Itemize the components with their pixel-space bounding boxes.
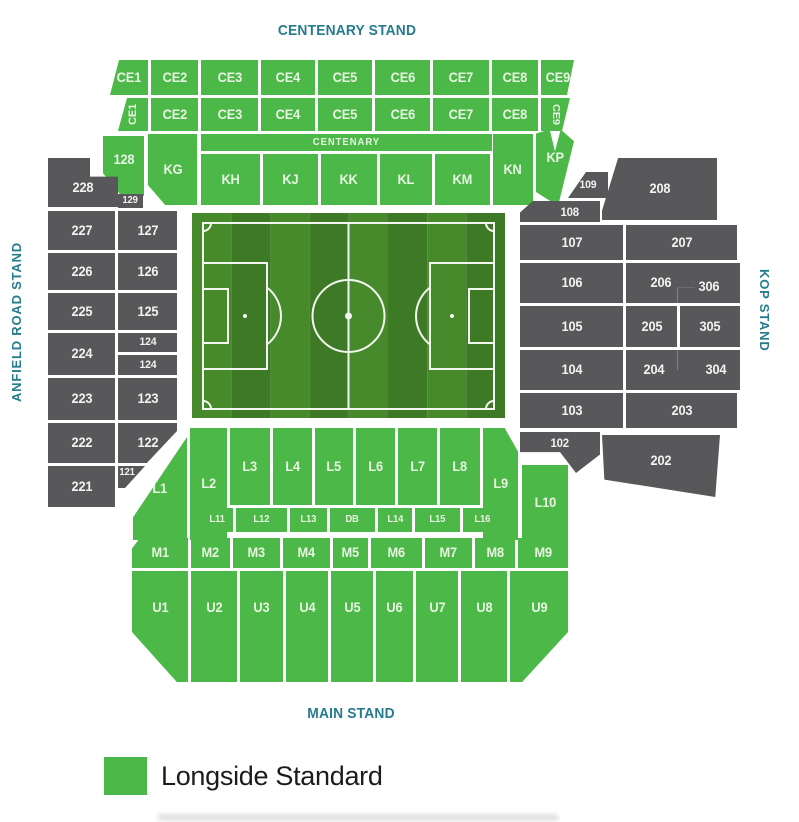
section-label: L2 xyxy=(201,477,216,491)
section-127[interactable]: 127 xyxy=(118,211,177,250)
section-label: 107 xyxy=(561,236,582,250)
section-126[interactable]: 126 xyxy=(118,253,177,290)
section-label: 105 xyxy=(561,320,582,334)
section-label: 122 xyxy=(137,436,158,450)
section-label: L16 xyxy=(475,515,491,525)
section-label: U4 xyxy=(299,601,315,615)
section-ce9[interactable]: CE9 xyxy=(541,98,570,131)
section-123[interactable]: 123 xyxy=(118,378,177,420)
section-u1[interactable]: U1 xyxy=(132,571,188,682)
section-m8[interactable]: M8 xyxy=(475,538,515,568)
section-label: M4 xyxy=(298,546,315,560)
section-203[interactable]: 203 xyxy=(626,393,737,428)
main-stand-title: MAIN STAND xyxy=(307,705,394,722)
section-label: L3 xyxy=(243,460,258,474)
section-label: 207 xyxy=(671,236,692,250)
section-l8[interactable]: L8 xyxy=(440,428,480,505)
section-label: 102 xyxy=(551,437,569,449)
section-label: 206 xyxy=(650,276,671,290)
section-label: L8 xyxy=(453,460,468,474)
section-label: 228 xyxy=(73,181,94,195)
section-label: CE2 xyxy=(162,108,186,122)
section-kl[interactable]: KL xyxy=(380,154,432,205)
section-m4[interactable]: M4 xyxy=(283,538,330,568)
section-label: 121 xyxy=(120,468,135,478)
section-ce6[interactable]: CE6 xyxy=(375,98,430,131)
section-label: M8 xyxy=(486,546,503,560)
section-u4[interactable]: U4 xyxy=(286,571,328,682)
section-224[interactable]: 224 xyxy=(48,333,115,375)
section-label: 103 xyxy=(561,404,582,418)
section-label: CE4 xyxy=(276,71,300,85)
kop-stand-title: KOP STAND xyxy=(757,269,772,352)
legend-swatch xyxy=(104,757,147,795)
section-label: 227 xyxy=(71,224,92,238)
section-m1[interactable]: M1 xyxy=(132,538,188,568)
section-ce5[interactable]: CE5 xyxy=(318,60,372,95)
section-l13[interactable]: L13 xyxy=(290,508,327,532)
section-l11[interactable]: L11 xyxy=(202,508,233,532)
section-label: KL xyxy=(398,173,415,187)
section-label: KG xyxy=(163,163,182,177)
section-l6[interactable]: L6 xyxy=(356,428,395,505)
section-103[interactable]: 103 xyxy=(520,393,623,428)
football-pitch xyxy=(192,213,505,418)
section-label: 225 xyxy=(71,305,92,319)
section-m9[interactable]: M9 xyxy=(518,538,568,568)
section-ce8[interactable]: CE8 xyxy=(492,60,538,95)
section-kn[interactable]: KN xyxy=(493,134,533,205)
anfield-road-stand-title: ANFIELD ROAD STAND xyxy=(9,242,24,402)
section-label: L15 xyxy=(430,515,446,525)
section-105[interactable]: 105 xyxy=(520,306,623,347)
section-label: 128 xyxy=(113,153,134,167)
section-label: 123 xyxy=(137,392,158,406)
section-l5[interactable]: L5 xyxy=(315,428,353,505)
section-kg[interactable]: KG xyxy=(148,134,197,205)
section-label: M5 xyxy=(342,546,359,560)
section-l4[interactable]: L4 xyxy=(273,428,312,505)
section-226[interactable]: 226 xyxy=(48,253,115,290)
section-u8[interactable]: U8 xyxy=(461,571,507,682)
section-label: DB xyxy=(346,515,359,525)
section-label: M7 xyxy=(440,546,457,560)
section-109[interactable]: 109 xyxy=(568,172,608,198)
section-222[interactable]: 222 xyxy=(48,423,115,463)
section-l10[interactable]: L10 xyxy=(522,465,568,540)
section-kj[interactable]: KJ xyxy=(263,154,318,205)
section-125[interactable]: 125 xyxy=(118,293,177,330)
section-106[interactable]: 106 xyxy=(520,263,623,303)
stadium-seat-map: CENTENARY STAND ANFIELD ROAD STAND KOP S… xyxy=(0,0,799,822)
section-124[interactable]: 124 xyxy=(118,333,177,352)
section-label: CE5 xyxy=(333,108,357,122)
section-label: CE3 xyxy=(217,71,241,85)
section-m3[interactable]: M3 xyxy=(233,538,280,568)
section-label: M2 xyxy=(202,546,219,560)
section-label: 106 xyxy=(561,276,582,290)
section-label: M3 xyxy=(248,546,265,560)
section-205[interactable]: 205 xyxy=(626,306,677,347)
section-l14[interactable]: L14 xyxy=(378,508,412,532)
section-221[interactable]: 221 xyxy=(48,466,115,507)
section-ce7[interactable]: CE7 xyxy=(433,60,489,95)
section-label: CE4 xyxy=(276,108,300,122)
section-label: L14 xyxy=(387,515,403,525)
section-l3[interactable]: L3 xyxy=(230,428,270,505)
section-label: U5 xyxy=(344,601,360,615)
section-kh[interactable]: KH xyxy=(201,154,260,205)
centenary-stand-title: CENTENARY STAND xyxy=(278,22,416,39)
section-label: 127 xyxy=(137,224,158,238)
section-u6[interactable]: U6 xyxy=(376,571,413,682)
section-u2[interactable]: U2 xyxy=(191,571,237,682)
section-label: L12 xyxy=(254,515,270,525)
section-label: CE9 xyxy=(550,104,560,125)
section-u7[interactable]: U7 xyxy=(416,571,458,682)
section-ce2[interactable]: CE2 xyxy=(151,60,198,95)
cropped-legend-row xyxy=(158,814,558,821)
section-label: CE9 xyxy=(545,71,569,85)
section-label: CE6 xyxy=(390,71,414,85)
section-label: 221 xyxy=(71,480,92,494)
section-223[interactable]: 223 xyxy=(48,378,115,420)
section-label: 306 xyxy=(699,280,720,294)
section-label: 109 xyxy=(580,180,597,191)
section-label: KK xyxy=(340,173,358,187)
section-ce3[interactable]: CE3 xyxy=(201,98,258,131)
section-label: 124 xyxy=(139,337,156,348)
section-l15[interactable]: L15 xyxy=(415,508,460,532)
section-108[interactable]: 108 xyxy=(520,201,600,222)
section-104[interactable]: 104 xyxy=(520,350,623,390)
section-label: 222 xyxy=(71,436,92,450)
section-202[interactable]: 202 xyxy=(602,435,720,497)
section-u9[interactable]: U9 xyxy=(510,571,568,682)
section-ce2[interactable]: CE2 xyxy=(151,98,198,131)
section-km[interactable]: KM xyxy=(435,154,490,205)
section-label: M1 xyxy=(151,546,168,560)
section-ce4[interactable]: CE4 xyxy=(261,60,315,95)
section-label: L5 xyxy=(327,460,342,474)
section-label: CE8 xyxy=(503,71,527,85)
section-ce1[interactable]: CE1 xyxy=(110,60,148,95)
section-u5[interactable]: U5 xyxy=(331,571,373,682)
section-label: KJ xyxy=(282,173,298,187)
section-label: KH xyxy=(221,173,239,187)
section-label: L6 xyxy=(368,460,383,474)
section-label: U3 xyxy=(253,601,269,615)
section-ce7[interactable]: CE7 xyxy=(433,98,489,131)
section-label: KM xyxy=(453,173,473,187)
section-label: 226 xyxy=(71,265,92,279)
section-l7[interactable]: L7 xyxy=(398,428,437,505)
section-label: L9 xyxy=(493,477,508,491)
section-label: CE7 xyxy=(449,108,473,122)
section-ce8[interactable]: CE8 xyxy=(492,98,538,131)
section-label: 223 xyxy=(71,392,92,406)
section-kp[interactable]: KP xyxy=(536,128,574,206)
section-label: 108 xyxy=(561,206,579,218)
section-121[interactable]: 121 xyxy=(118,466,145,488)
section-m7[interactable]: M7 xyxy=(425,538,472,568)
section-label: CE3 xyxy=(217,108,241,122)
section-m6[interactable]: M6 xyxy=(371,538,422,568)
section-label: 124 xyxy=(139,360,156,371)
section-label: L4 xyxy=(285,460,300,474)
section-225[interactable]: 225 xyxy=(48,293,115,330)
section-kk[interactable]: KK xyxy=(321,154,377,205)
section-m5[interactable]: M5 xyxy=(333,538,368,568)
section-label: U2 xyxy=(206,601,222,615)
section-label: U9 xyxy=(531,601,547,615)
section-208[interactable]: 208 xyxy=(602,158,717,220)
section-label: 202 xyxy=(651,454,672,468)
section-122[interactable]: 122 xyxy=(118,423,177,463)
legend: Longside Standard xyxy=(104,757,383,795)
section-label: L1 xyxy=(153,482,168,496)
section-ce5[interactable]: CE5 xyxy=(318,98,372,131)
section-label: 208 xyxy=(649,182,670,196)
section-label: CE1 xyxy=(128,104,139,125)
section-l16[interactable]: L16 xyxy=(463,508,502,532)
section-label: 126 xyxy=(137,265,158,279)
section-ce3[interactable]: CE3 xyxy=(201,60,258,95)
section-label: U1 xyxy=(152,601,168,615)
section-centenary[interactable]: CENTENARY xyxy=(201,134,492,151)
section-label: CE1 xyxy=(117,71,141,85)
section-227[interactable]: 227 xyxy=(48,211,115,250)
section-label: CE8 xyxy=(503,108,527,122)
section-107[interactable]: 107 xyxy=(520,225,623,260)
section-ce9[interactable]: CE9 xyxy=(541,60,574,95)
section-label: 205 xyxy=(641,320,662,334)
section-label: U7 xyxy=(429,601,445,615)
legend-label: Longside Standard xyxy=(161,761,383,792)
section-label: L7 xyxy=(410,460,425,474)
section-label: CE2 xyxy=(162,71,186,85)
section-db[interactable]: DB xyxy=(330,508,375,532)
section-ce4[interactable]: CE4 xyxy=(261,98,315,131)
section-ce6[interactable]: CE6 xyxy=(375,60,430,95)
section-label: M6 xyxy=(388,546,405,560)
section-label: 125 xyxy=(137,305,158,319)
section-label: M9 xyxy=(534,546,551,560)
section-124[interactable]: 124 xyxy=(118,355,177,375)
section-label: KP xyxy=(546,151,563,165)
section-label: 305 xyxy=(700,320,721,334)
section-u3[interactable]: U3 xyxy=(240,571,283,682)
section-label: L13 xyxy=(301,515,317,525)
section-label: U8 xyxy=(476,601,492,615)
section-m2[interactable]: M2 xyxy=(191,538,230,568)
section-129[interactable]: 129 xyxy=(118,194,143,208)
section-label: 204 xyxy=(643,363,664,377)
section-l12[interactable]: L12 xyxy=(236,508,287,532)
section-label: L11 xyxy=(210,515,225,525)
section-label: U6 xyxy=(386,601,402,615)
section-label: CE7 xyxy=(449,71,473,85)
section-label: 224 xyxy=(71,347,92,361)
pitch-graphic xyxy=(192,213,505,418)
section-label: 203 xyxy=(671,404,692,418)
section-ce1[interactable]: CE1 xyxy=(118,98,148,131)
section-label: L10 xyxy=(534,496,556,510)
section-207[interactable]: 207 xyxy=(626,225,737,260)
section-label: 104 xyxy=(561,363,582,377)
section-label: KN xyxy=(504,163,522,177)
section-label: 304 xyxy=(706,363,727,377)
section-label: CE5 xyxy=(333,71,357,85)
section-label: CENTENARY xyxy=(313,138,380,148)
section-label: CE6 xyxy=(390,108,414,122)
section-305[interactable]: 305 xyxy=(680,306,740,347)
section-label: 129 xyxy=(123,196,138,206)
